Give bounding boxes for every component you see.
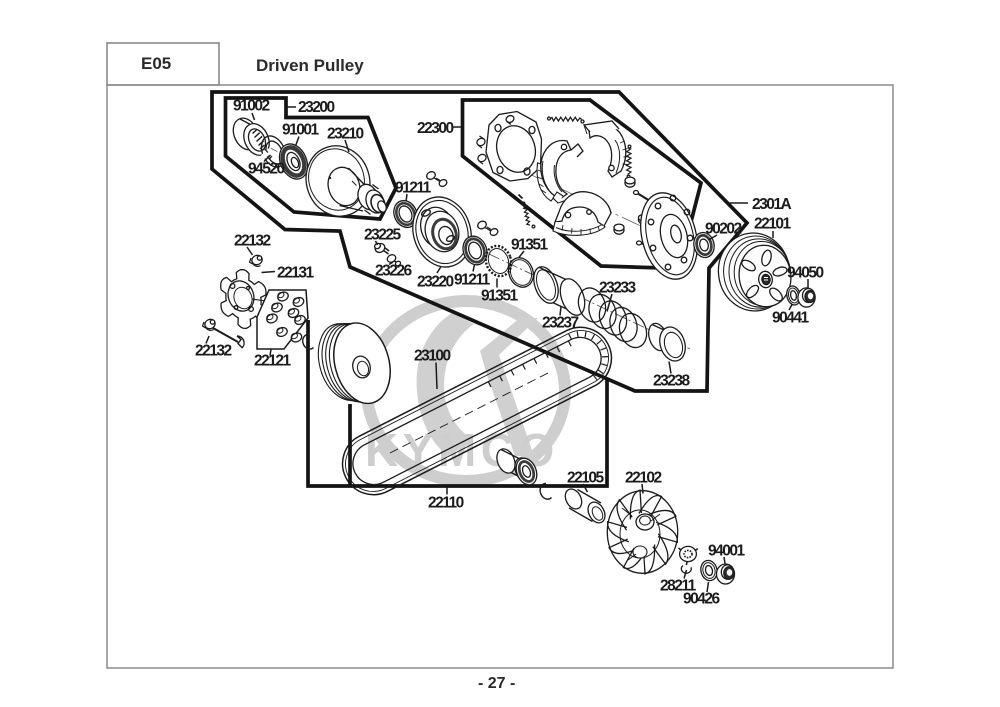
svg-text:91351: 91351 <box>511 237 548 254</box>
svg-text:23220: 23220 <box>417 274 453 291</box>
svg-text:22105: 22105 <box>567 470 604 487</box>
svg-text:90426: 90426 <box>683 591 720 608</box>
svg-text:23226: 23226 <box>375 263 412 280</box>
svg-text:90202: 90202 <box>705 221 741 238</box>
svg-text:22110: 22110 <box>428 495 464 512</box>
svg-text:91351: 91351 <box>481 288 518 305</box>
svg-text:94001: 94001 <box>708 543 745 560</box>
svg-text:23237: 23237 <box>542 315 578 332</box>
svg-text:22101: 22101 <box>754 216 791 233</box>
svg-text:22300: 22300 <box>417 120 453 137</box>
svg-text:23200: 23200 <box>298 99 334 116</box>
svg-text:22132: 22132 <box>195 343 231 360</box>
svg-text:22121: 22121 <box>254 353 291 370</box>
svg-text:91211: 91211 <box>395 180 432 197</box>
svg-text:23225: 23225 <box>364 227 401 244</box>
svg-text:91002: 91002 <box>233 98 269 115</box>
svg-text:22102: 22102 <box>625 470 661 487</box>
svg-text:22131: 22131 <box>277 265 314 282</box>
svg-text:94050: 94050 <box>787 265 823 282</box>
svg-text:23233: 23233 <box>599 280 636 297</box>
svg-text:94520: 94520 <box>248 161 284 178</box>
svg-text:2301A: 2301A <box>752 196 791 213</box>
svg-text:90441: 90441 <box>772 310 809 327</box>
svg-text:23100: 23100 <box>414 348 450 365</box>
svg-text:22132: 22132 <box>234 233 270 250</box>
svg-text:91211: 91211 <box>454 272 491 289</box>
svg-text:91001: 91001 <box>282 122 319 139</box>
svg-text:23238: 23238 <box>653 373 690 390</box>
